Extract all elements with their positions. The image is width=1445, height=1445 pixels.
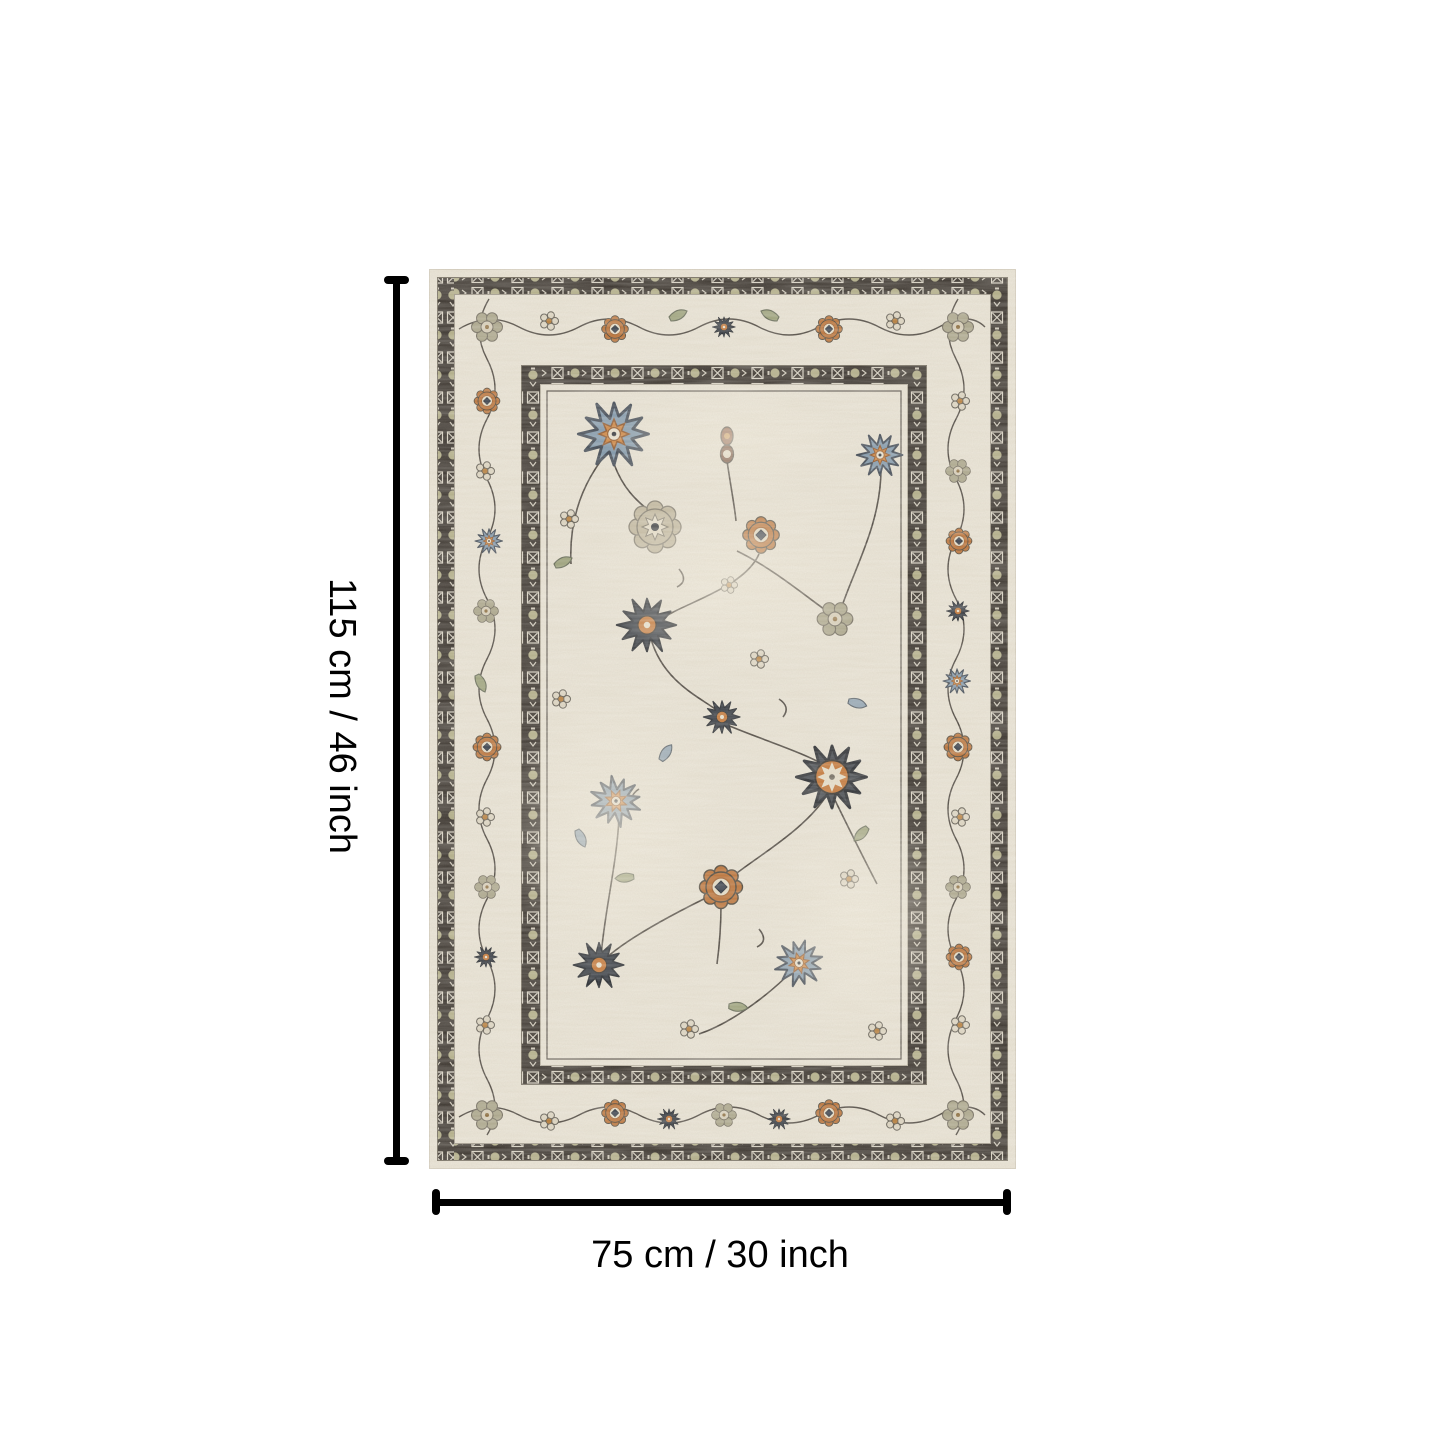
height-dimension-line [393, 280, 400, 1161]
product-dimension-image: 115 cm / 46 inch 75 cm / 30 inch [0, 0, 1445, 1445]
height-dimension-cap-top [384, 276, 409, 284]
height-dimension-cap-bottom [384, 1157, 409, 1165]
width-dimension-cap-right [1003, 1189, 1011, 1215]
width-dimension-line [436, 1199, 1007, 1206]
rug-illustration [429, 269, 1016, 1169]
height-dimension-label: 115 cm / 46 inch [319, 578, 363, 854]
rug-product-image [429, 269, 1016, 1169]
width-dimension-label: 75 cm / 30 inch [591, 1234, 849, 1278]
width-dimension-cap-left [432, 1189, 440, 1215]
